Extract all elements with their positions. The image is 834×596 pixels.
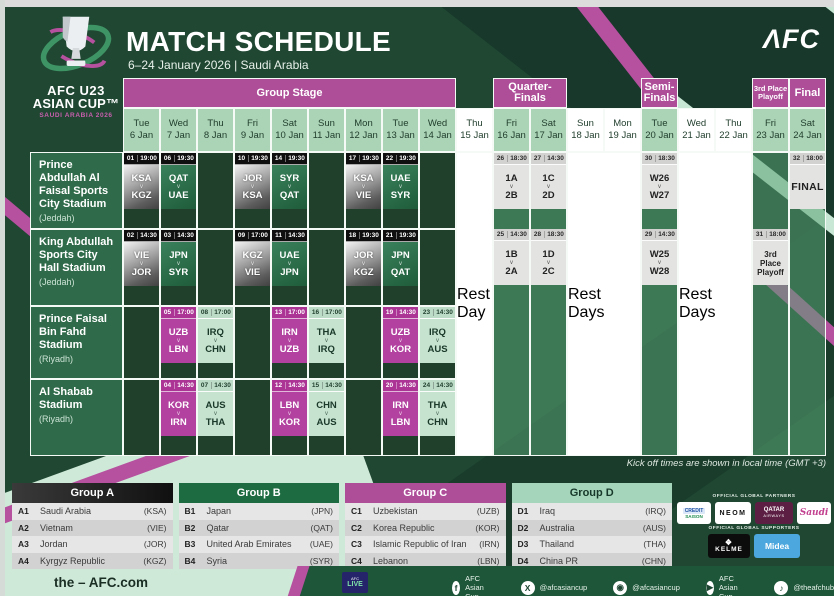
team-position: C4 xyxy=(351,556,373,566)
date-day: 22 Jan xyxy=(719,130,748,142)
match-number-time: 1214:30 xyxy=(272,380,307,392)
sponsor-logo: ❖KELME xyxy=(708,534,750,558)
sponsor-logo: CREDITSAISON xyxy=(677,502,711,524)
versus-label: v xyxy=(362,261,365,268)
home-team: THA xyxy=(317,328,337,338)
afc-website-link[interactable]: the – AFC.com xyxy=(54,575,148,590)
schedule-grid: Group StageQuarter- FinalsSemi- Finals3r… xyxy=(30,78,826,456)
footer-mint-shape xyxy=(0,570,318,596)
match-cell: 0817:00IRQvCHN xyxy=(198,307,233,363)
match-number: 03 xyxy=(161,232,175,239)
match-teams: 1Bv2A xyxy=(494,241,529,285)
team-name: Thailand xyxy=(540,539,644,549)
match-number-time: 1019:30 xyxy=(235,153,270,165)
match-teams: KSAvKGZ xyxy=(124,165,159,209)
match-cell: 0619:30QATvUAE xyxy=(161,153,196,209)
home-team: KGZ xyxy=(242,251,262,261)
match-cell: 3118:003rd Place Playoff xyxy=(753,229,788,285)
social-item[interactable]: fAFC Asian Cup xyxy=(452,574,495,596)
match-number: 18 xyxy=(346,232,360,239)
away-team: AUS xyxy=(427,345,447,355)
team-code: (KOR) xyxy=(475,523,499,533)
match-time: 18:00 xyxy=(804,155,825,162)
team-position: C2 xyxy=(351,523,373,533)
day-cell: 1019:30JORvKSA xyxy=(234,152,271,229)
match-cell: 1719:30KSAvVIE xyxy=(346,153,381,209)
away-team: UAE xyxy=(168,191,188,201)
date-day: 13 Jan xyxy=(386,130,415,142)
rest-day-cell: Rest Days xyxy=(567,152,641,456)
team-name: Islamic Republic of Iran xyxy=(373,539,479,549)
stage-header: Final xyxy=(789,78,826,108)
match-time: 19:30 xyxy=(397,155,418,162)
match-number-time: 2514:30 xyxy=(494,229,529,241)
away-team: 2D xyxy=(542,191,554,201)
date-dow: Sun xyxy=(318,118,335,130)
home-team: JOR xyxy=(243,174,263,184)
match-cell: 2914:30W25vW28 xyxy=(642,229,677,285)
team-position: D4 xyxy=(518,556,540,566)
team-row: A4Kyrgyz Republic(KGZ) xyxy=(12,553,173,570)
social-label: @theafchub xyxy=(793,583,834,592)
match-number-time: 1617:00 xyxy=(309,307,344,319)
team-code: (QAT) xyxy=(310,523,333,533)
day-cell: 0619:30QATvUAE xyxy=(160,152,197,229)
away-team: KGZ xyxy=(353,268,373,278)
knockout-column: 2714:301Cv2D2818:301Dv2C xyxy=(530,152,567,456)
knockout-column: 3218:00FINAL xyxy=(789,152,826,456)
match-number: 17 xyxy=(346,155,360,162)
sponsor-logo: Saudi xyxy=(797,502,831,524)
date-header: Mon19 Jan xyxy=(604,108,641,152)
match-number-time: 1317:00 xyxy=(272,307,307,319)
match-cell: 3018:30W26vW27 xyxy=(642,153,677,209)
match-number: 07 xyxy=(198,382,212,389)
match-number: 01 xyxy=(124,155,138,162)
match-number: 24 xyxy=(420,382,434,389)
page-subtitle: 6–24 January 2026 | Saudi Arabia xyxy=(128,58,309,72)
match-teams: JPNvQAT xyxy=(383,242,418,286)
team-name: Korea Republic xyxy=(373,523,475,533)
team-code: (KGZ) xyxy=(143,556,166,566)
day-cell xyxy=(123,306,160,379)
match-cell: 2414:30THAvCHN xyxy=(420,380,455,436)
team-position: B3 xyxy=(185,539,207,549)
home-team: 1C xyxy=(542,174,554,184)
sponsors-block: OFFICIAL GLOBAL PARTNERS CREDITSAISONNEO… xyxy=(676,492,832,558)
day-cell xyxy=(197,229,234,306)
match-number: 11 xyxy=(272,232,286,239)
away-team: LBN xyxy=(169,345,189,355)
date-header: Fri9 Jan xyxy=(234,108,271,152)
day-cell: 1719:30KSAvVIE xyxy=(345,152,382,229)
team-row: D2Australia(AUS) xyxy=(512,520,673,537)
supporters-label: OFFICIAL GLOBAL SUPPORTERS xyxy=(676,526,832,531)
stage-header: Semi- Finals xyxy=(641,78,678,108)
date-dow: Fri xyxy=(506,118,517,130)
match-teams: W26vW27 xyxy=(642,165,677,209)
match-teams: 1Av2B xyxy=(494,165,529,209)
home-team: LBN xyxy=(280,401,300,411)
team-name: Australia xyxy=(540,523,643,533)
day-cell: 0517:00UZBvLBN xyxy=(160,306,197,379)
social-label: @afcasiancup xyxy=(632,583,680,592)
away-team: SYR xyxy=(391,191,411,201)
group-table-header: Group C xyxy=(345,483,506,503)
day-cell: 2314:30IRQvAUS xyxy=(419,306,456,379)
poster-canvas: AFC U23 ASIAN CUP™ SAUDI ARABIA 2026 MAT… xyxy=(0,0,834,596)
match-number-time: 1419:30 xyxy=(272,153,307,165)
team-name: Saudi Arabia xyxy=(40,506,144,516)
date-day: 8 Jan xyxy=(204,130,227,142)
venue-city: (Jeddah) xyxy=(39,277,117,287)
match-cell: 1617:00THAvIRQ xyxy=(309,307,344,363)
match-number-time: 0817:00 xyxy=(198,307,233,319)
home-team: KSA xyxy=(131,174,151,184)
match-time: 17:00 xyxy=(249,232,270,239)
rest-day-label: Rest Day xyxy=(457,286,492,322)
match-time: 14:30 xyxy=(286,232,307,239)
team-row: B2Qatar(QAT) xyxy=(179,520,340,537)
away-team: KSA xyxy=(242,191,262,201)
match-number: 21 xyxy=(383,232,397,239)
social-item[interactable]: ♪@theafchub xyxy=(774,574,834,596)
date-header: Fri23 Jan xyxy=(752,108,789,152)
date-dow: Thu xyxy=(207,118,223,130)
day-cell xyxy=(234,306,271,379)
match-number-time: 2219:30 xyxy=(383,153,418,165)
match-number: 31 xyxy=(753,231,767,238)
day-cell: 0214:30VIEvJOR xyxy=(123,229,160,306)
team-name: Qatar xyxy=(207,523,311,533)
date-dow: Sun xyxy=(577,118,594,130)
match-number: 09 xyxy=(235,232,249,239)
match-number: 32 xyxy=(790,155,804,162)
team-name: Japan xyxy=(207,506,312,516)
match-number: 05 xyxy=(161,309,175,316)
sponsor-logo: QATARAIRWAYS xyxy=(755,502,793,524)
date-dow: Tue xyxy=(651,118,667,130)
match-number: 06 xyxy=(161,155,175,162)
match-number-time: 2818:30 xyxy=(531,229,566,241)
date-dow: Tue xyxy=(392,118,408,130)
home-team: IRQ xyxy=(207,328,224,338)
versus-label: v xyxy=(399,411,402,418)
home-team: SYR xyxy=(280,174,300,184)
match-number-time: 0119:00 xyxy=(124,153,159,165)
match-time: 14:30 xyxy=(212,382,233,389)
match-teams: IRNvUZB xyxy=(272,319,307,363)
day-cell: 0314:30JPNvSYR xyxy=(160,229,197,306)
match-number: 14 xyxy=(272,155,286,162)
day-cell: 1114:30UAEvJPN xyxy=(271,229,308,306)
day-cell xyxy=(308,152,345,229)
day-cell: 0917:00KGZvVIE xyxy=(234,229,271,306)
team-code: (CHN) xyxy=(642,556,666,566)
match-time: 19:30 xyxy=(360,232,381,239)
team-row: C1Uzbekistan(UZB) xyxy=(345,503,506,520)
match-cell: 2119:30JPNvQAT xyxy=(383,230,418,286)
match-time: 18:30 xyxy=(545,231,566,238)
partners-label: OFFICIAL GLOBAL PARTNERS xyxy=(676,494,832,499)
venue-city: (Riyadh) xyxy=(39,354,117,364)
match-teams: KGZvVIE xyxy=(235,242,270,286)
away-team: IRN xyxy=(170,418,186,428)
match-time: 18:30 xyxy=(656,155,677,162)
team-position: B2 xyxy=(185,523,207,533)
match-time: 19:30 xyxy=(175,155,196,162)
match-cell: 2618:301Av2B xyxy=(494,153,529,209)
date-header: Fri16 Jan xyxy=(493,108,530,152)
knockout-column: 3118:003rd Place Playoff xyxy=(752,152,789,456)
match-number-time: 3118:00 xyxy=(753,229,788,241)
match-number: 04 xyxy=(161,382,175,389)
match-number-time: 0619:30 xyxy=(161,153,196,165)
day-cell: 1914:30UZBvKOR xyxy=(382,306,419,379)
away-team: JOR xyxy=(132,268,152,278)
match-number-time: 2119:30 xyxy=(383,230,418,242)
day-cell xyxy=(419,152,456,229)
day-cell: 2414:30THAvCHN xyxy=(419,379,456,456)
date-header: Sat17 Jan xyxy=(530,108,567,152)
match-time: 14:30 xyxy=(397,309,418,316)
away-team: LBN xyxy=(391,418,411,428)
venue-name: Prince Faisal Bin Fahd Stadium xyxy=(39,313,117,352)
team-position: C3 xyxy=(351,539,373,549)
match-teams: FINAL xyxy=(790,165,825,209)
rest-day-label: Rest Days xyxy=(568,286,640,322)
match-number: 26 xyxy=(494,155,508,162)
sponsor-logo: NEOM xyxy=(715,502,751,524)
match-teams: JORvKSA xyxy=(235,165,270,209)
kickoff-note: Kick off times are shown in local time (… xyxy=(627,458,826,469)
versus-label: v xyxy=(436,338,439,345)
match-time: 18:30 xyxy=(508,155,529,162)
versus-label: v xyxy=(325,411,328,418)
match-number-time: 0917:00 xyxy=(235,230,270,242)
date-day: 10 Jan xyxy=(275,130,304,142)
team-name: Uzbekistan xyxy=(373,506,477,516)
day-cell: 0119:00KSAvKGZ xyxy=(123,152,160,229)
day-cell xyxy=(345,379,382,456)
home-team: KOR xyxy=(168,401,189,411)
home-team: JOR xyxy=(354,251,374,261)
versus-label: v xyxy=(288,184,291,191)
versus-label: v xyxy=(251,261,254,268)
match-time: 17:00 xyxy=(286,309,307,316)
date-header: Thu15 Jan xyxy=(456,108,493,152)
youtube-icon: ▶ xyxy=(706,581,714,595)
day-cell xyxy=(197,152,234,229)
date-day: 18 Jan xyxy=(571,130,600,142)
match-time: 19:30 xyxy=(397,232,418,239)
match-teams: KSAvVIE xyxy=(346,165,381,209)
team-name: United Arab Emirates xyxy=(207,539,310,549)
match-teams: IRNvLBN xyxy=(383,392,418,436)
home-team: IRN xyxy=(392,401,408,411)
team-row: A2Vietnam(VIE) xyxy=(12,520,173,537)
match-number: 29 xyxy=(642,231,656,238)
knockout-column: 2618:301Av2B2514:301Bv2A xyxy=(493,152,530,456)
date-header: Tue13 Jan xyxy=(382,108,419,152)
afc-live-badge: AFC LIVE xyxy=(342,572,368,593)
match-number: 22 xyxy=(383,155,397,162)
match-number-time: 0414:30 xyxy=(161,380,196,392)
away-team: QAT xyxy=(280,191,299,201)
versus-label: v xyxy=(510,184,513,191)
team-position: D2 xyxy=(518,523,540,533)
away-team: KGZ xyxy=(131,191,151,201)
knockout-column: 3018:30W26vW272914:30W25vW28 xyxy=(641,152,678,456)
versus-label: v xyxy=(140,184,143,191)
stage-header: Quarter- Finals xyxy=(493,78,567,108)
group-table: Group BB1Japan(JPN)B2Qatar(QAT)B3United … xyxy=(179,483,340,569)
day-cell: 1214:30LBNvKOR xyxy=(271,379,308,456)
team-name: Lebanon xyxy=(373,556,477,566)
team-position: D1 xyxy=(518,506,540,516)
match-number-time: 0314:30 xyxy=(161,230,196,242)
date-day: 16 Jan xyxy=(497,130,526,142)
date-day: 24 Jan xyxy=(793,130,822,142)
social-links: fAFC Asian CupX@afcasiancup◉@afcasiancup… xyxy=(452,574,834,596)
versus-label: v xyxy=(251,184,254,191)
social-item[interactable]: ◉@afcasiancup xyxy=(613,574,680,596)
date-dow: Thu xyxy=(725,118,741,130)
match-number-time: 2914:30 xyxy=(642,229,677,241)
date-header: Thu8 Jan xyxy=(197,108,234,152)
match-time: 17:00 xyxy=(175,309,196,316)
team-row: A1Saudi Arabia(KSA) xyxy=(12,503,173,520)
match-number: 13 xyxy=(272,309,286,316)
team-name: Syria xyxy=(207,556,310,566)
away-team: 2A xyxy=(505,267,517,277)
match-time: 14:30 xyxy=(397,382,418,389)
x-icon: X xyxy=(521,581,535,595)
match-time: 14:30 xyxy=(286,382,307,389)
date-header: Wed14 Jan xyxy=(419,108,456,152)
date-day: 17 Jan xyxy=(534,130,563,142)
match-number-time: 1819:30 xyxy=(346,230,381,242)
facebook-icon: f xyxy=(452,581,460,595)
partners-row: CREDITSAISONNEOMQATARAIRWAYSSaudi xyxy=(676,502,832,524)
team-position: A4 xyxy=(18,556,40,566)
group-table-body: C1Uzbekistan(UZB)C2Korea Republic(KOR)C3… xyxy=(345,503,506,569)
stage-header: Group Stage xyxy=(123,78,456,108)
away-team: SYR xyxy=(169,268,189,278)
match-cell: 1214:30LBNvKOR xyxy=(272,380,307,436)
rest-day-cell: Rest Days xyxy=(678,152,752,456)
team-row: D1Iraq(IRQ) xyxy=(512,503,673,520)
stage-header: 3rd Place Playoff xyxy=(752,78,789,108)
team-code: (UAE) xyxy=(310,539,333,549)
away-team: 2C xyxy=(542,267,554,277)
team-position: C1 xyxy=(351,506,373,516)
date-header: Mon12 Jan xyxy=(345,108,382,152)
group-table: Group AA1Saudi Arabia(KSA)A2Vietnam(VIE)… xyxy=(12,483,173,569)
social-item[interactable]: X@afcasiancup xyxy=(521,574,588,596)
away-team: AUS xyxy=(316,418,336,428)
match-number: 19 xyxy=(383,309,397,316)
match-teams: THAvIRQ xyxy=(309,319,344,363)
date-dow: Wed xyxy=(428,118,447,130)
match-number: 08 xyxy=(198,309,212,316)
match-time: 14:30 xyxy=(323,382,344,389)
away-team: IRQ xyxy=(318,345,335,355)
match-teams: THAvCHN xyxy=(420,392,455,436)
day-cell: 2119:30JPNvQAT xyxy=(382,229,419,306)
match-number: 20 xyxy=(383,382,397,389)
match-number: 23 xyxy=(420,309,434,316)
team-position: B1 xyxy=(185,506,207,516)
page-title: MATCH SCHEDULE xyxy=(126,26,391,58)
date-dow: Mon xyxy=(354,118,372,130)
match-teams: VIEvJOR xyxy=(124,242,159,286)
day-cell: 2014:30IRNvLBN xyxy=(382,379,419,456)
versus-label: v xyxy=(177,184,180,191)
group-table-body: B1Japan(JPN)B2Qatar(QAT)B3United Arab Em… xyxy=(179,503,340,569)
away-team: W28 xyxy=(650,267,670,277)
match-number: 25 xyxy=(494,231,508,238)
date-dow: Sat xyxy=(541,118,555,130)
home-team: QAT xyxy=(169,174,188,184)
versus-label: v xyxy=(399,184,402,191)
home-team: AUS xyxy=(205,401,225,411)
match-time: 14:30 xyxy=(434,382,455,389)
date-header: Sun11 Jan xyxy=(308,108,345,152)
left-edge-strip xyxy=(0,0,5,596)
away-team: CHN xyxy=(427,418,448,428)
day-cell: 1317:00IRNvUZB xyxy=(271,306,308,379)
match-cell: 0314:30JPNvSYR xyxy=(161,230,196,286)
away-team: UZB xyxy=(280,345,300,355)
day-cell xyxy=(123,379,160,456)
date-day: 6 Jan xyxy=(130,130,153,142)
rest-day-cell: Rest Day xyxy=(456,152,493,456)
date-day: 19 Jan xyxy=(608,130,637,142)
team-position: A1 xyxy=(18,506,40,516)
away-team: W27 xyxy=(650,191,670,201)
away-team: KOR xyxy=(279,418,300,428)
date-header: Sun18 Jan xyxy=(567,108,604,152)
home-team: CHN xyxy=(316,401,337,411)
team-code: (LBN) xyxy=(477,556,499,566)
team-code: (VIE) xyxy=(147,523,166,533)
match-teams: KORvIRN xyxy=(161,392,196,436)
match-time: 14:30 xyxy=(175,232,196,239)
team-name: Jordan xyxy=(40,539,144,549)
match-teams: SYRvQAT xyxy=(272,165,307,209)
day-cell: 1514:30CHNvAUS xyxy=(308,379,345,456)
date-dow: Mon xyxy=(613,118,631,130)
venue-cell: Prince Faisal Bin Fahd Stadium(Riyadh) xyxy=(30,306,123,379)
paw-icon: ❖ xyxy=(725,539,733,546)
match-time: 19:30 xyxy=(360,155,381,162)
venue-name: King Abdullah Sports City Hall Stadium xyxy=(39,236,117,275)
versus-label: v xyxy=(214,411,217,418)
match-cell: 0414:30KORvIRN xyxy=(161,380,196,436)
match-time: 14:30 xyxy=(434,309,455,316)
match-number-time: 2014:30 xyxy=(383,380,418,392)
match-number: 30 xyxy=(642,155,656,162)
sponsor-text: SAISON xyxy=(685,514,703,519)
social-item[interactable]: ▶AFC Asian Cup xyxy=(706,574,749,596)
day-cell: 1419:30SYRvQAT xyxy=(271,152,308,229)
match-time: 19:00 xyxy=(138,155,159,162)
match-time: 14:30 xyxy=(508,231,529,238)
match-number-time: 0214:30 xyxy=(124,230,159,242)
home-team: UAE xyxy=(279,251,299,261)
match-teams: QATvUAE xyxy=(161,165,196,209)
